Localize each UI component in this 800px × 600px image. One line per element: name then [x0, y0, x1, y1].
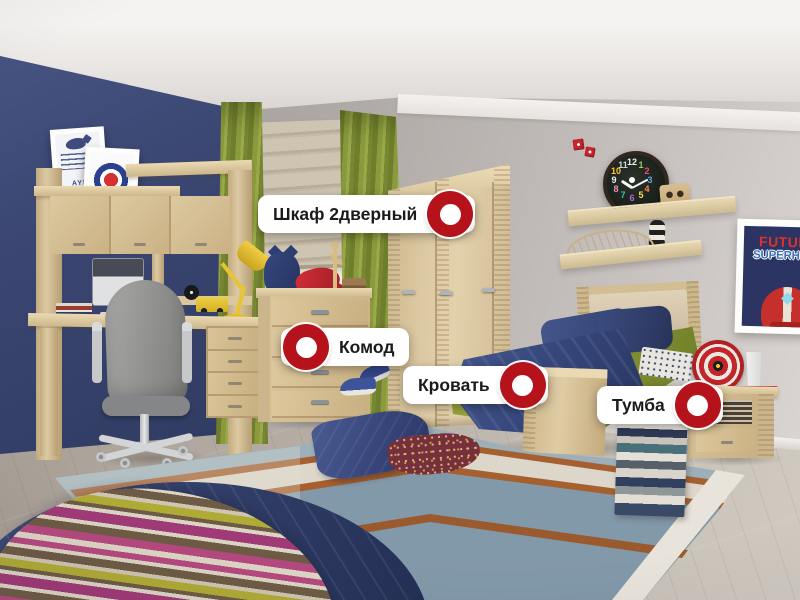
hotspot-label: Тумба: [612, 395, 665, 416]
hotspot-label: Комод: [339, 337, 394, 358]
book-stack: [614, 419, 687, 517]
hotspot-bed[interactable]: Кровать: [403, 366, 548, 404]
hotspot-wardrobe[interactable]: Шкаф 2дверный: [258, 195, 475, 233]
hotspot-marker-center: [440, 204, 461, 225]
hotspot-marker[interactable]: [675, 382, 721, 428]
hotspot-dresser[interactable]: Комод: [281, 328, 409, 366]
hotspot-label: Кровать: [418, 375, 490, 396]
hotspot-marker[interactable]: [427, 191, 473, 237]
hotspot-nightstand[interactable]: Тумба: [597, 386, 723, 424]
hotspot-marker-center: [687, 395, 708, 416]
hotspot-marker[interactable]: [500, 362, 546, 408]
hotspot-marker-center: [296, 337, 317, 358]
hotspot-label: Шкаф 2дверный: [273, 204, 417, 225]
room-scene: 12 1 2 3 4 5 6 7 8 9 10 11 FUTURE SUPERH…: [0, 0, 800, 600]
hotspot-marker-center: [512, 375, 533, 396]
hotspot-marker[interactable]: [283, 324, 329, 370]
